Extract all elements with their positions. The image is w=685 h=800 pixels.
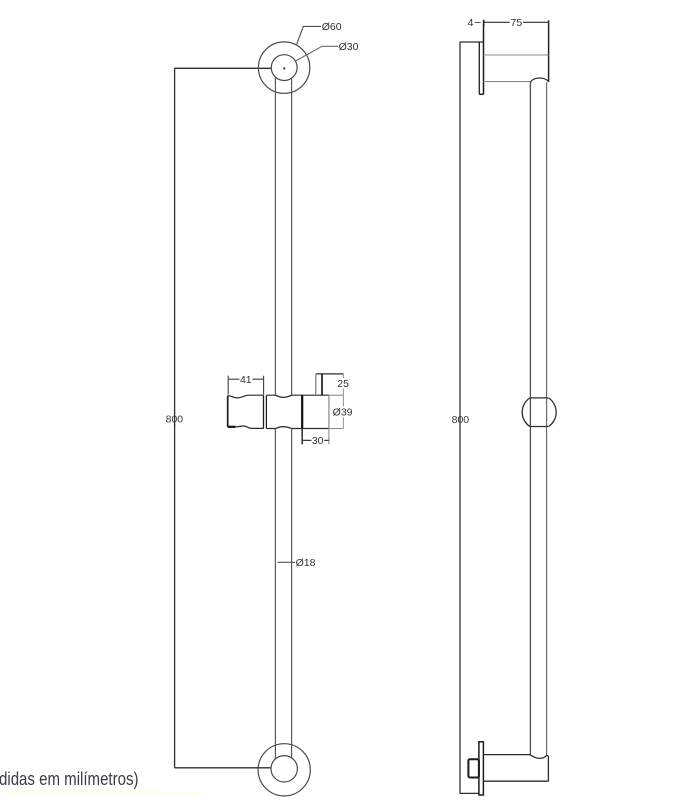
svg-text:75: 75 <box>511 17 523 29</box>
svg-text:Ø39: Ø39 <box>333 406 353 418</box>
svg-text:Ø60: Ø60 <box>322 21 342 33</box>
svg-text:didas em milímetros): didas em milímetros) <box>0 769 139 789</box>
svg-text:25: 25 <box>337 378 349 390</box>
svg-text:30: 30 <box>312 435 324 447</box>
svg-text:41: 41 <box>240 374 252 386</box>
svg-text:Ø30: Ø30 <box>339 41 359 53</box>
svg-text:Ø18: Ø18 <box>296 557 316 569</box>
svg-text:4: 4 <box>468 17 474 29</box>
